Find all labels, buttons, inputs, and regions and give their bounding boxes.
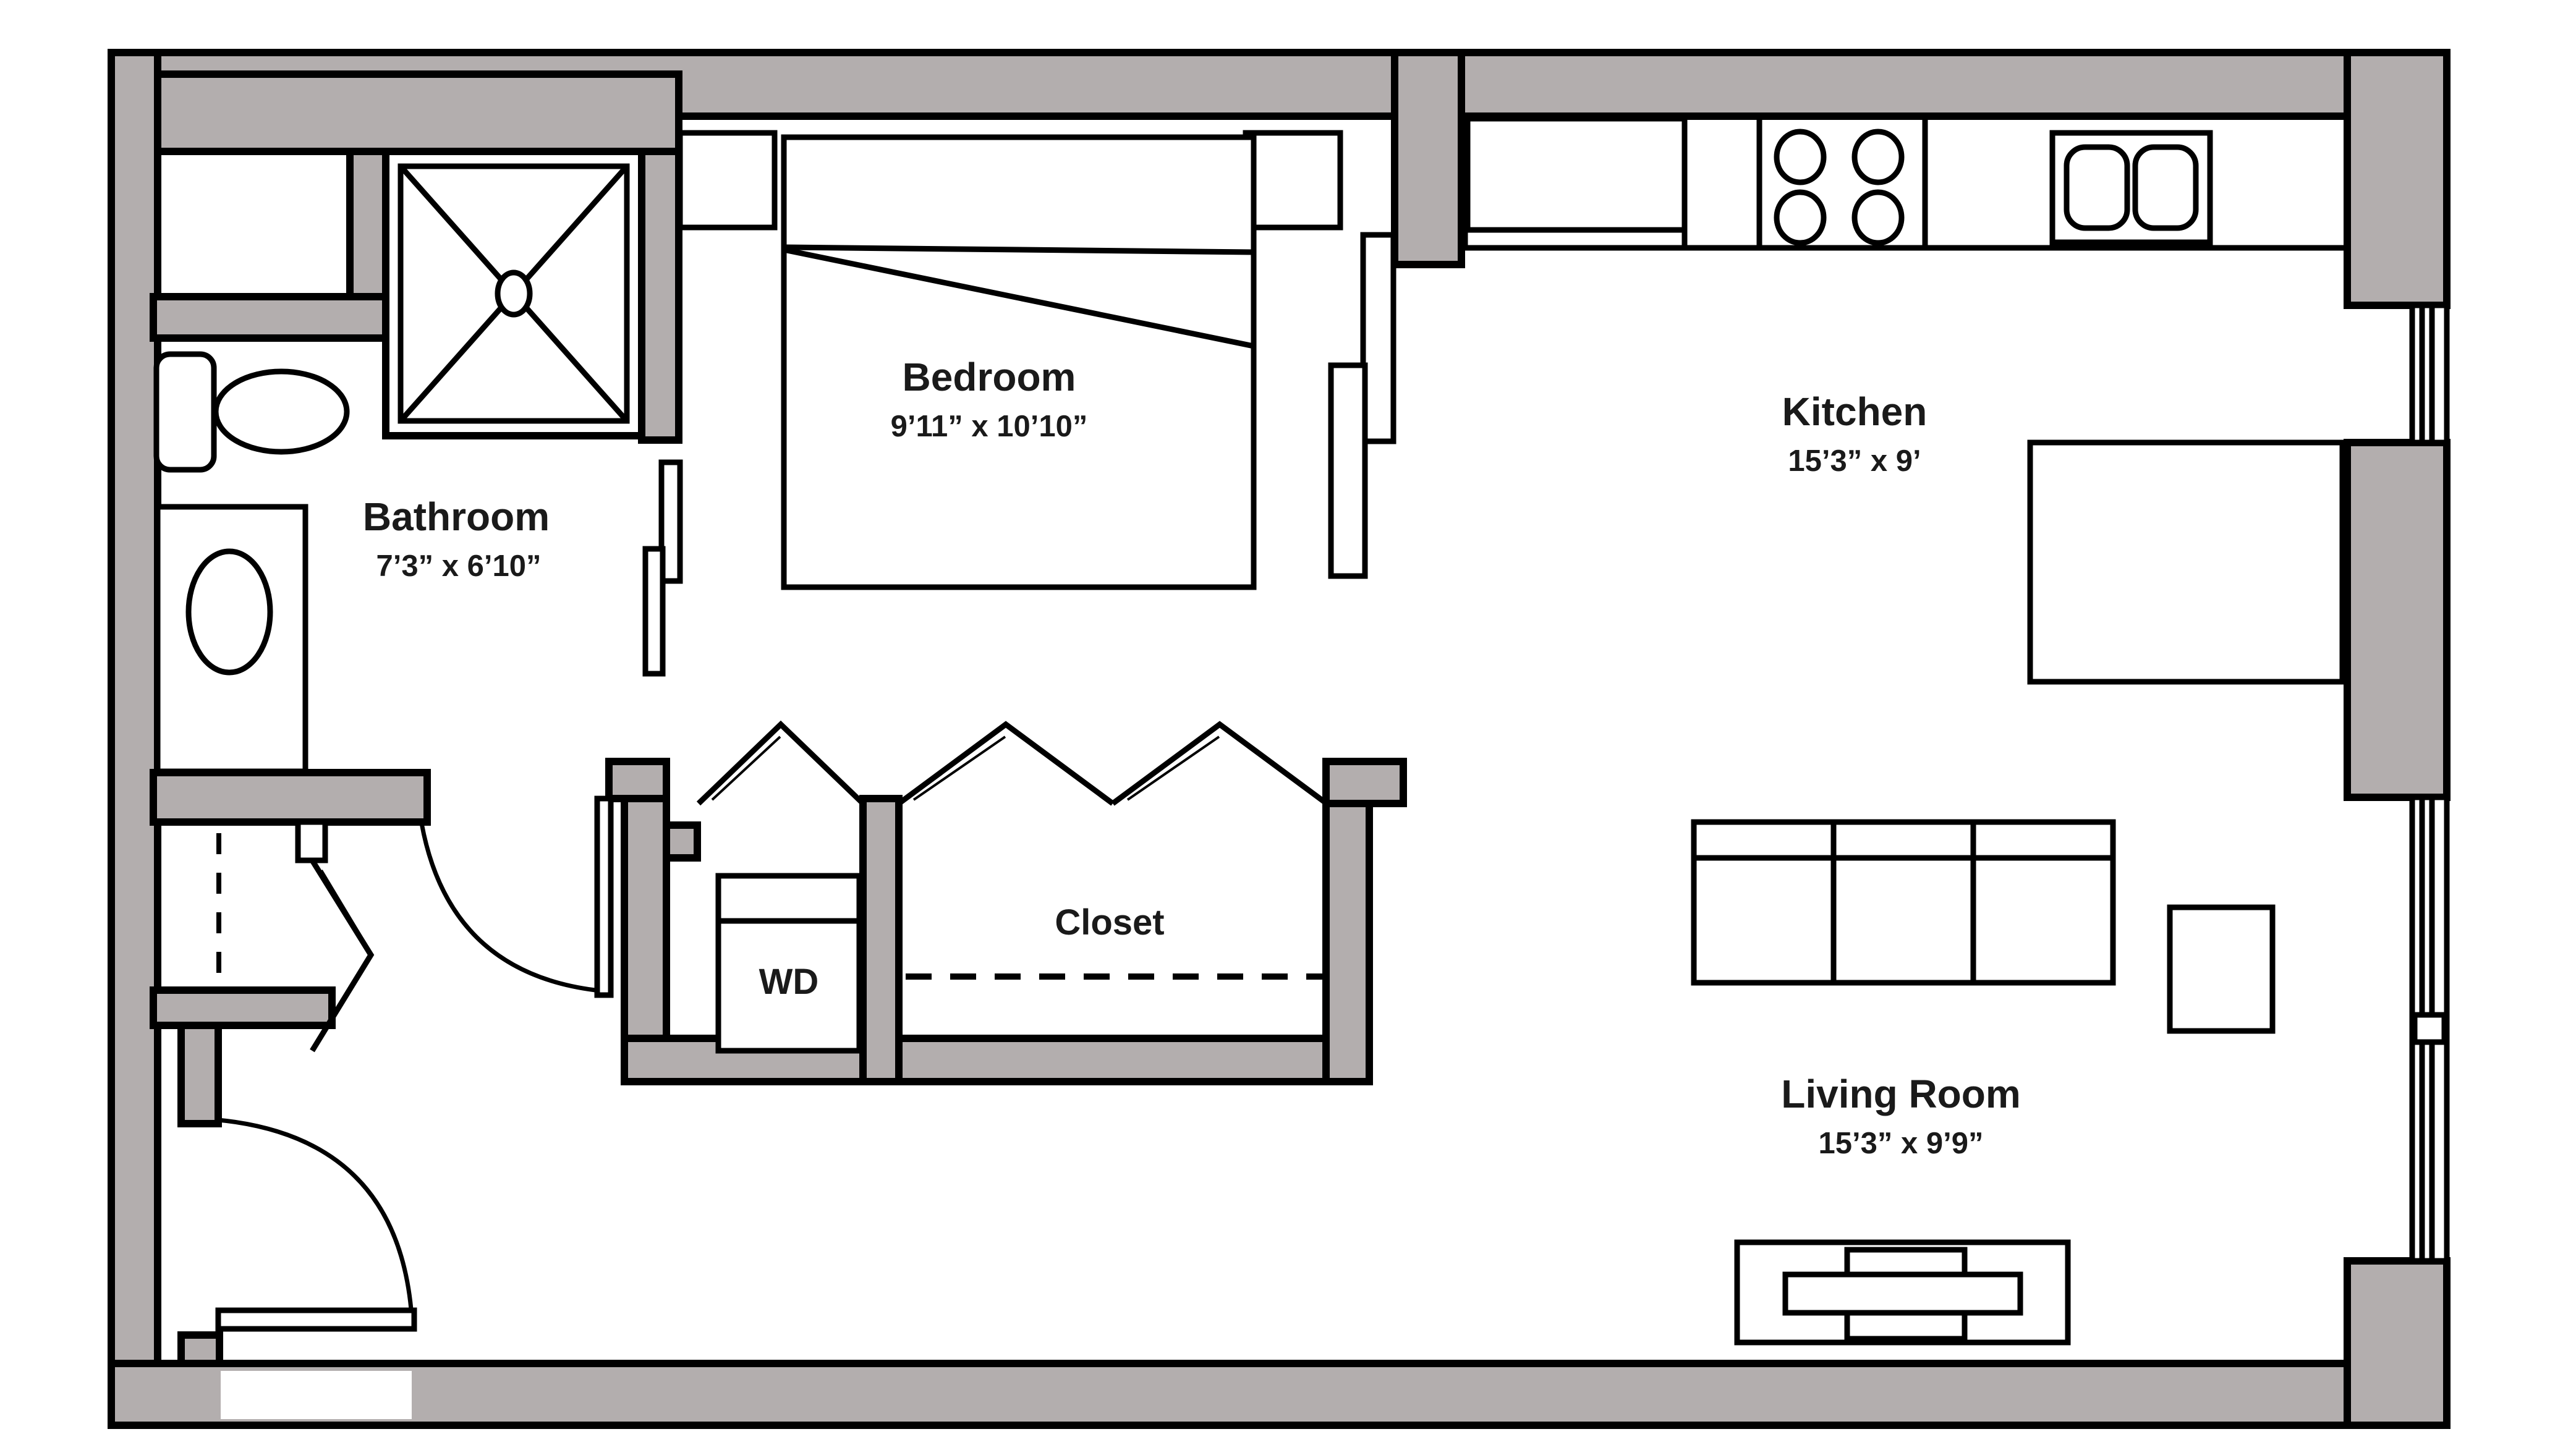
entry-opening [221, 1371, 412, 1419]
wall-entry-closet-bottom [153, 990, 332, 1025]
vanity-sink-icon [158, 507, 305, 771]
wall-right-top-corner [2347, 53, 2447, 305]
burner [1777, 132, 1824, 182]
bathroom [156, 151, 642, 771]
stove-burners-icon [1759, 116, 1925, 248]
wall-closet-corner [1326, 761, 1403, 803]
wall-wd-closet-divider [863, 799, 899, 1082]
door-leaf [218, 1310, 414, 1329]
kitchen-island-icon [2030, 443, 2342, 682]
living-room-label: Living Room [1781, 1072, 2021, 1116]
wall-right-bottom-corner [2347, 1261, 2447, 1425]
wall-entry-leg [181, 1025, 218, 1124]
wall-bottom [111, 1363, 2447, 1425]
shelf-niche-icon [158, 151, 350, 297]
bifold-chevron [899, 724, 1113, 803]
wall-entry-stub [181, 1335, 219, 1363]
nightstand-icon [680, 133, 775, 227]
closet-label: Closet [1055, 902, 1164, 943]
floor-plan: Bathroom 7’3” x 6’10” Bedroom 9’11” x 10… [0, 0, 2576, 1450]
refrigerator-icon [1468, 119, 1685, 230]
wall-closet-east [1326, 803, 1369, 1082]
wall-below-niche [153, 297, 386, 338]
console-bottom [1847, 1313, 1965, 1339]
sliding-door-panels-icon [1331, 365, 1365, 576]
closet-door-jamb [298, 822, 325, 860]
wall-bathroom-bedroom [642, 151, 679, 440]
bathroom-dims: 7’3” x 6’10” [376, 549, 542, 583]
shower-icon [386, 151, 642, 436]
hinged-door-icon [218, 1120, 414, 1329]
bifold-door-icon [699, 724, 1327, 803]
tv-console-icon [1737, 1242, 2068, 1342]
sliding-door-panels-icon [645, 549, 663, 674]
toilet-tank [156, 354, 214, 470]
window-latch-icon [2415, 1015, 2444, 1042]
double-sink-icon [2052, 133, 2210, 242]
bifold-chevron-inner [914, 737, 1005, 800]
shower-drain [498, 273, 530, 315]
sink-basin [2135, 147, 2196, 228]
sofa-outline [1694, 822, 2113, 983]
sofa-icon [1694, 822, 2113, 983]
bifold-chevron-inner [321, 870, 366, 944]
wall-top-bathroom [153, 74, 679, 151]
wall-left [111, 53, 158, 1363]
kitchen-dims: 15’3” x 9’ [1788, 444, 1921, 478]
burner [1855, 192, 1902, 243]
wall-right-pillar [2347, 443, 2447, 797]
door-swing-arc [218, 1120, 411, 1309]
burner [1855, 132, 1902, 182]
floor-plan-canvas: Bathroom 7’3” x 6’10” Bedroom 9’11” x 10… [0, 0, 2576, 1450]
bifold-chevron [699, 724, 863, 803]
nightstand-icon [1246, 133, 1340, 227]
vanity-basin [189, 551, 270, 672]
doors [218, 799, 611, 1329]
wall-wd-jamb [666, 825, 697, 858]
bifold-chevron-inner [1128, 737, 1219, 800]
bifold-chevron [1113, 724, 1327, 803]
console-middle [1785, 1274, 2020, 1313]
hinged-door-icon [422, 799, 611, 995]
living-room-dims: 15’3” x 9’9” [1819, 1127, 1984, 1160]
bedroom [645, 133, 1393, 674]
bifold-chevron-inner [712, 737, 780, 800]
wall-bathroom-south [153, 773, 427, 822]
wall-wd-bump [609, 761, 666, 799]
door-leaf [597, 799, 611, 995]
toilet-bowl [216, 371, 347, 452]
side-table-icon [2170, 907, 2272, 1031]
bathroom-label: Bathroom [363, 494, 550, 539]
wall-bedroom-kitchen [1395, 53, 1461, 265]
sink-basin [2067, 147, 2127, 228]
wd-label: WD [759, 962, 819, 1002]
burner [1777, 192, 1824, 243]
toilet-icon [156, 354, 347, 470]
door-swing-arc [422, 823, 595, 990]
bedroom-label: Bedroom [903, 355, 1076, 399]
kitchen-label: Kitchen [1782, 389, 1928, 434]
bedroom-dims: 9’11” x 10’10” [891, 410, 1088, 443]
